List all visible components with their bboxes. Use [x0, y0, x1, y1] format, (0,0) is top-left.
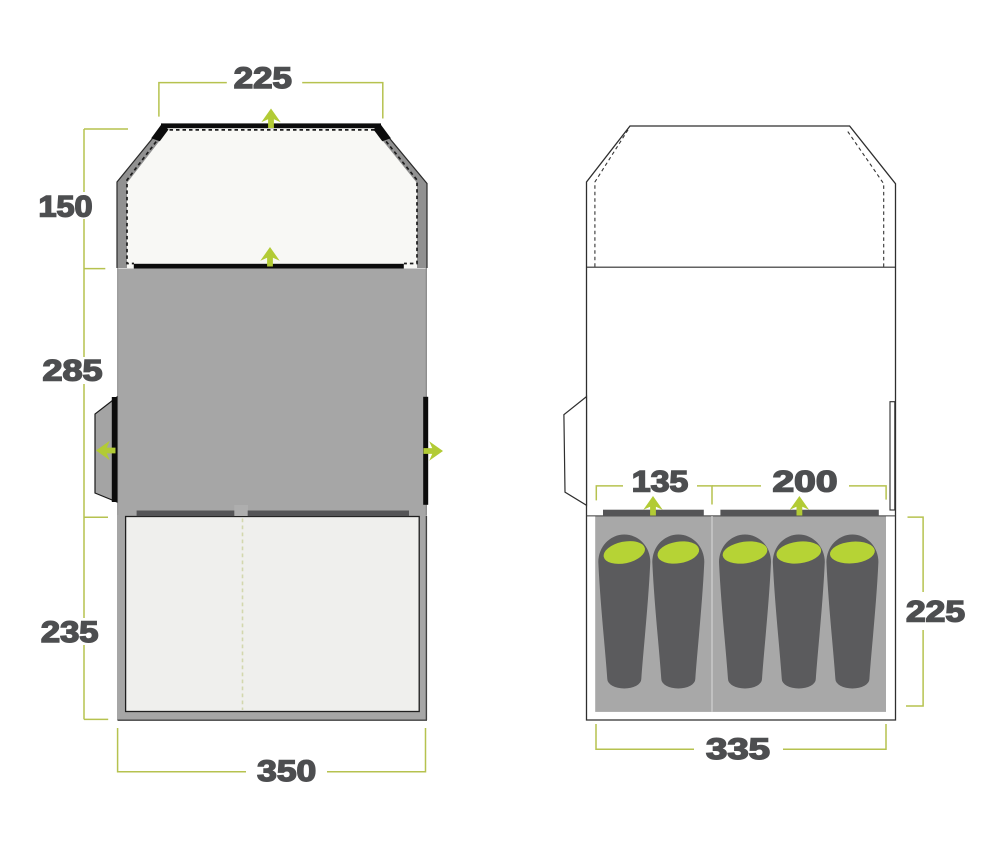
svg-text:200: 200: [773, 466, 838, 498]
svg-text:225: 225: [234, 61, 292, 94]
svg-text:235: 235: [41, 615, 99, 648]
svg-text:150: 150: [38, 190, 92, 223]
svg-text:285: 285: [42, 354, 102, 387]
svg-text:135: 135: [632, 464, 689, 497]
svg-text:225: 225: [906, 595, 965, 628]
svg-text:350: 350: [257, 755, 316, 788]
svg-text:335: 335: [706, 733, 770, 766]
